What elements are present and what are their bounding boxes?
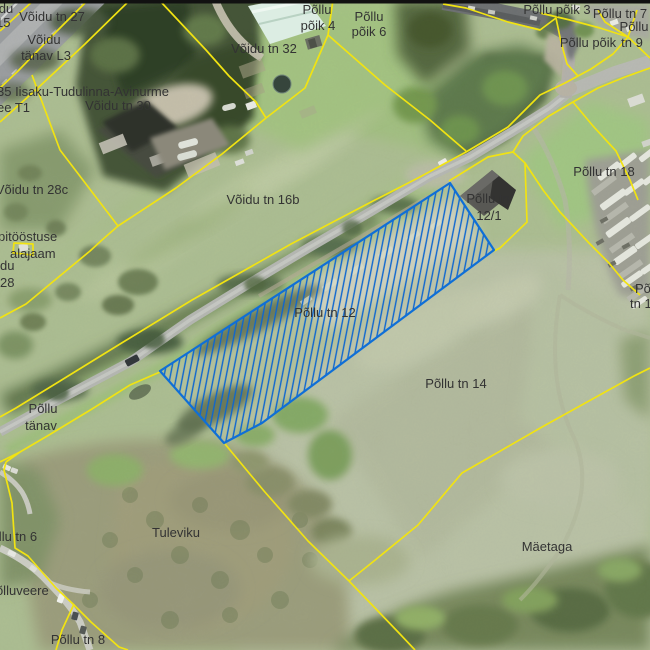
svg-text:Põllu põik 3: Põllu põik 3 xyxy=(523,2,590,17)
svg-text:Võidu tn 28c: Võidu tn 28c xyxy=(0,182,69,197)
svg-text:Põllu tn 14: Põllu tn 14 xyxy=(425,376,486,391)
svg-text:Põllu tn: Põllu tn xyxy=(466,191,509,206)
svg-text:Võidu tn 27: Võidu tn 27 xyxy=(19,9,85,24)
svg-text:35 Iisaku-Tudulinna-Avinurme: 35 Iisaku-Tudulinna-Avinurme xyxy=(0,84,169,99)
svg-text:Põllu tn 18: Põllu tn 18 xyxy=(573,164,634,179)
svg-text:tn 1: tn 1 xyxy=(630,296,650,311)
svg-text:ee T1: ee T1 xyxy=(0,100,30,115)
svg-text:Tuleviku: Tuleviku xyxy=(152,525,200,540)
svg-text:28: 28 xyxy=(0,275,14,290)
svg-text:põik 6: põik 6 xyxy=(352,24,387,39)
svg-text:Põllu tn 6: Põllu tn 6 xyxy=(0,529,37,544)
svg-text:alajaam: alajaam xyxy=(10,246,56,261)
svg-text:Mäetaga: Mäetaga xyxy=(522,539,573,554)
svg-text:15: 15 xyxy=(0,15,10,30)
svg-text:Põllu: Põllu xyxy=(303,2,332,17)
svg-text:Põllu: Põllu xyxy=(29,401,58,416)
svg-text:Võidu tn 16b: Võidu tn 16b xyxy=(226,192,299,207)
svg-text:Põllu põik: Põllu põik xyxy=(560,35,617,50)
svg-text:Võidu: Võidu xyxy=(27,32,60,47)
svg-text:Põlluveere: Põlluveere xyxy=(0,583,49,598)
svg-text:12/1: 12/1 xyxy=(476,208,501,223)
svg-text:põik 4: põik 4 xyxy=(301,18,336,33)
svg-text:tänav L3: tänav L3 xyxy=(21,48,71,63)
svg-text:Põ: Põ xyxy=(635,281,650,296)
svg-text:tn 9: tn 9 xyxy=(621,35,643,50)
svg-text:Võidu tn 30: Võidu tn 30 xyxy=(85,98,151,113)
svg-text:Võidu tn 32: Võidu tn 32 xyxy=(231,41,297,56)
svg-text:Põllu: Põllu xyxy=(620,19,649,34)
svg-text:pitööstuse: pitööstuse xyxy=(0,229,57,244)
svg-text:du: du xyxy=(0,258,14,273)
svg-text:Põllu tn 12: Põllu tn 12 xyxy=(294,305,355,320)
svg-text:Põllu tn 8: Põllu tn 8 xyxy=(51,632,105,647)
svg-text:Põllu: Põllu xyxy=(355,9,384,24)
svg-text:tänav: tänav xyxy=(25,418,57,433)
